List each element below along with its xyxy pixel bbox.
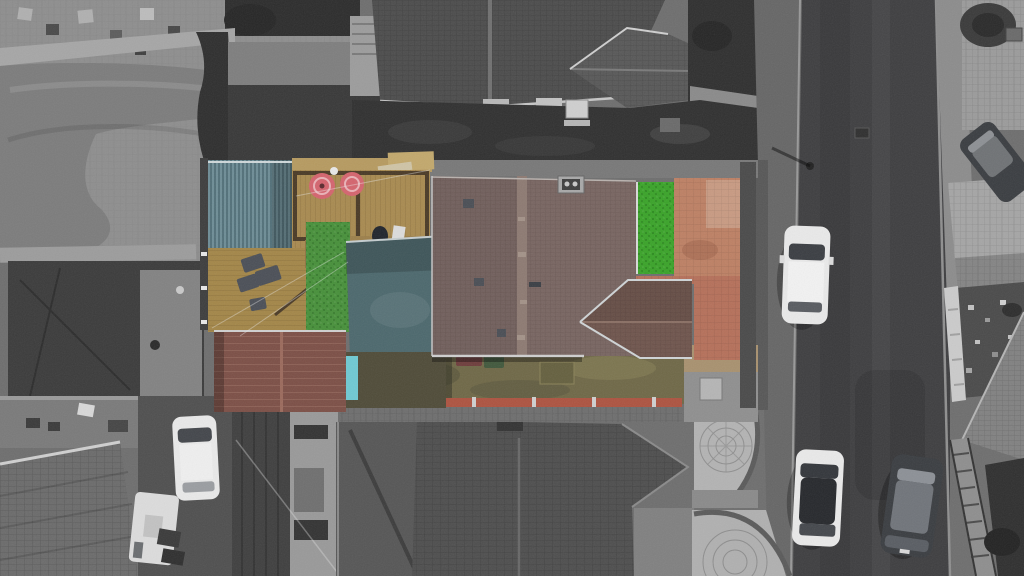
- aerial-photo: [0, 0, 1024, 576]
- film-grain-overlay: [0, 0, 1024, 576]
- aerial-photo-canvas: [0, 0, 1024, 576]
